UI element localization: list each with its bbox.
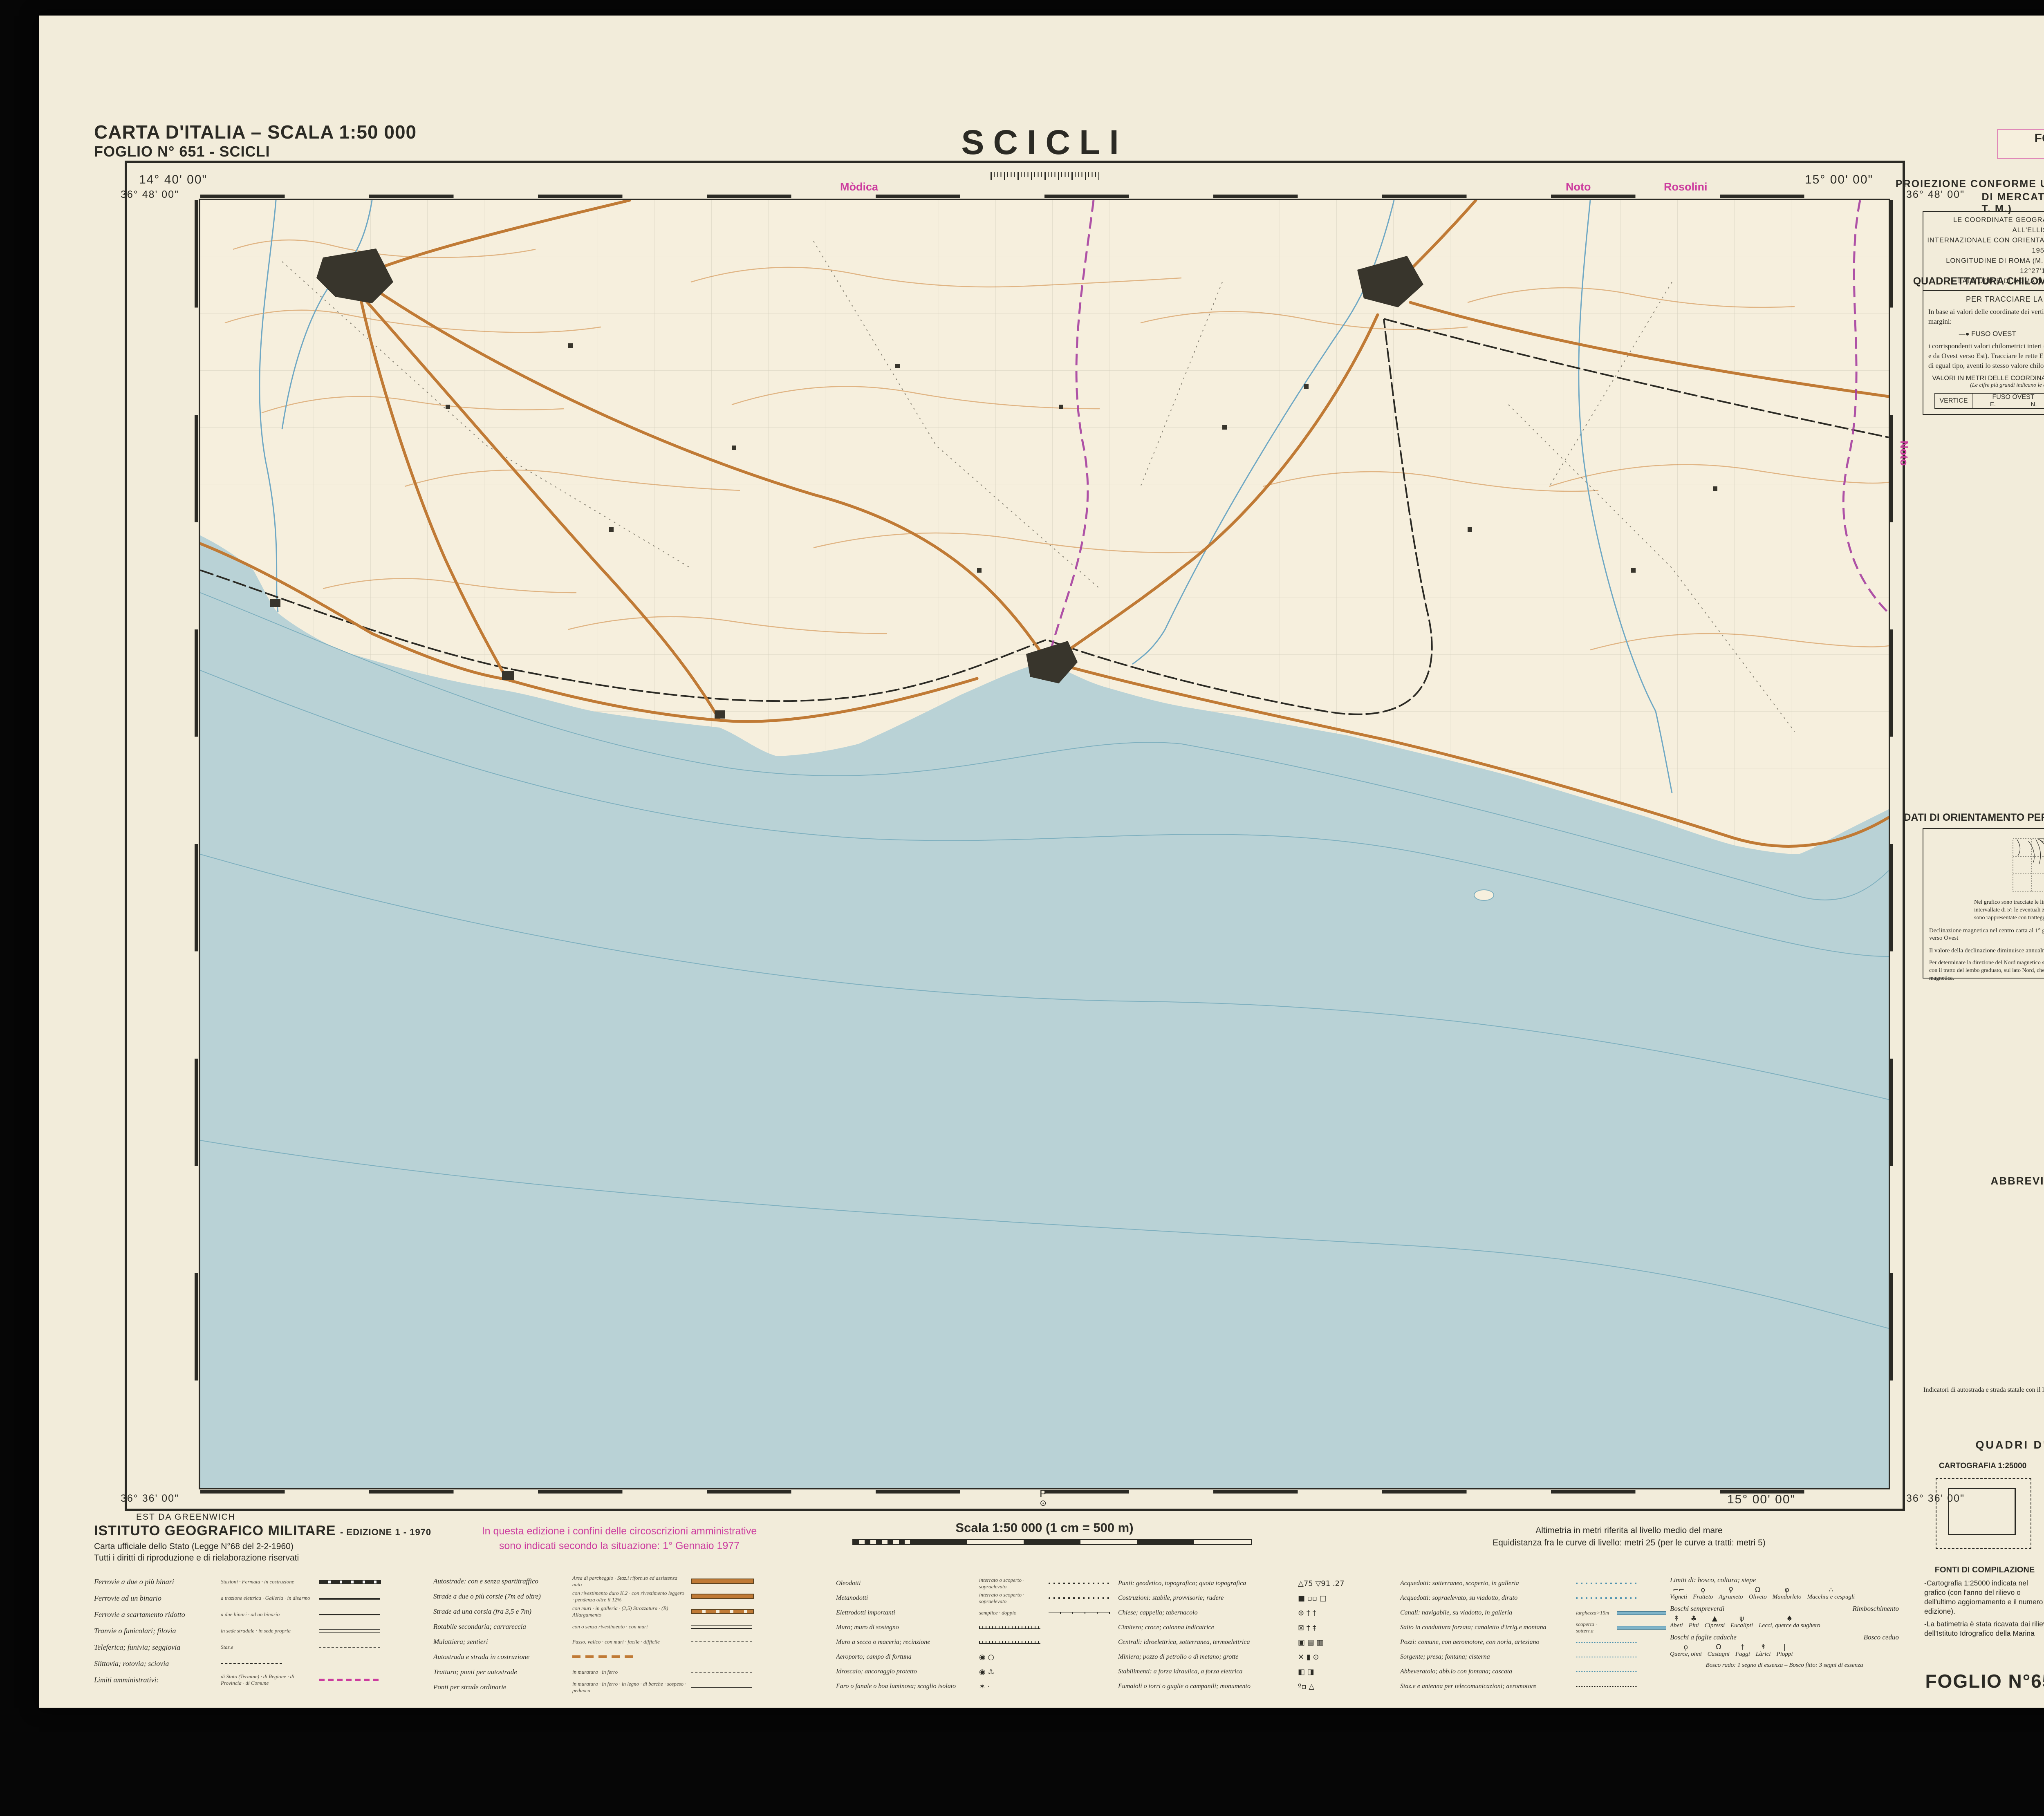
legend-symbol-icon bbox=[1617, 1611, 1666, 1615]
declination-ruler bbox=[991, 172, 1098, 193]
map-sheet: CARTA D'ITALIA – SCALA 1:50 000 FOGLIO N… bbox=[39, 16, 2044, 1708]
legend-column-roads: Autostrade: con e senza spartitraffico A… bbox=[433, 1574, 832, 1695]
legend-label: Idroscalo; ancoraggio protetto bbox=[836, 1668, 975, 1675]
legend-row: Elettrodotti importanti semplice · doppi… bbox=[836, 1606, 1114, 1620]
legend-symbol-icon bbox=[1576, 1642, 1637, 1643]
vegetation-icon: Ω bbox=[1708, 1644, 1730, 1651]
legend-label: Tranvie o funicolari; filovia bbox=[94, 1627, 217, 1635]
map-title: SCICLI bbox=[961, 123, 1127, 162]
vegetation-item: Ω Oliveto bbox=[1749, 1587, 1767, 1601]
fonti-text: -Cartografia 1:25000 indicata nel grafic… bbox=[1924, 1579, 2044, 1641]
map-svg bbox=[200, 200, 1889, 1488]
veg-deciduous-row: ϙ Querce, olmi Ω Castagni † Faggi ↟ Làri… bbox=[1670, 1644, 1899, 1658]
legend-glyphs-icon: ▣ ▤ ▥ bbox=[1298, 1638, 1323, 1647]
legend-glyphs-icon: ✕ ▮ ⊙ bbox=[1298, 1653, 1319, 1661]
legend-label: Acquedotti: sopraelevato, su viadotto, d… bbox=[1400, 1594, 1572, 1602]
admin-note-line1: In questa edizione i confini delle circo… bbox=[439, 1524, 799, 1538]
legend-symbol-icon bbox=[1049, 1597, 1110, 1599]
fonti-item-1: -Cartografia 1:25000 indicata nel grafic… bbox=[1924, 1579, 2044, 1616]
legend-symbol-icon bbox=[319, 1614, 380, 1615]
legend-sublabel: a due binari · ad un binario bbox=[221, 1611, 315, 1618]
corner-lon-se: 15° 00' 00" bbox=[1727, 1493, 1795, 1507]
legend-sublabel: semplice · doppio bbox=[979, 1610, 1044, 1616]
scale-bar-segment bbox=[967, 1540, 1024, 1544]
veg-coppice-label: Bosco ceduo bbox=[1864, 1633, 1899, 1641]
vegetation-name: Pioppi bbox=[1776, 1651, 1793, 1657]
scale-bar-segment bbox=[1194, 1540, 1251, 1544]
publisher-rights: Tutti i diritti di riproduzione e di rie… bbox=[94, 1553, 299, 1563]
vegetation-item: ♀ Agrumeto bbox=[1719, 1587, 1743, 1601]
legend-label: Elettrodotti importanti bbox=[836, 1609, 975, 1617]
legend-row: Fumaioli o torri o guglie o campanili; m… bbox=[1118, 1679, 1396, 1694]
quad-paragraph-2: i corrispondenti valori chilometrici int… bbox=[1928, 341, 2044, 371]
publisher-edition: - EDIZIONE 1 - 1970 bbox=[340, 1527, 431, 1537]
legend-sublabel: larghezza>15m bbox=[1576, 1610, 1613, 1616]
legend-symbol-icon bbox=[319, 1679, 380, 1681]
legend-symbol-icon bbox=[319, 1598, 380, 1599]
legend-row: Punti: geodetico, topografico; quota top… bbox=[1118, 1576, 1396, 1591]
vegetation-icon: | bbox=[1776, 1644, 1793, 1651]
projection-title-1: PROIEZIONE CONFORME UNIVERSALE TRASVERSA bbox=[1896, 178, 2044, 190]
vegetation-icon: ♣ bbox=[1689, 1615, 1699, 1622]
legend-symbol-icon bbox=[691, 1687, 752, 1688]
legend-row: Metanodotti interrato o scoperto · sopra… bbox=[836, 1591, 1114, 1606]
legend-row: Canali: navigabile, su viadotto, in gall… bbox=[1400, 1606, 1666, 1620]
legend-row: Stabilimenti: a forza idraulica, a forza… bbox=[1118, 1664, 1396, 1679]
sheet-subtitle: FOGLIO N° 651 - SCICLI bbox=[94, 143, 270, 160]
minute-ticks-right bbox=[1889, 200, 1893, 1488]
legend-sublabel: di Stato (Termine) · di Regione · di Pro… bbox=[221, 1673, 315, 1686]
edge-town-noto-top: Noto bbox=[1566, 181, 1591, 193]
veg-limits-label: Limiti di: bosco, coltura; siepe bbox=[1670, 1576, 1899, 1584]
fonti-title: FONTI DI COMPILAZIONE bbox=[1935, 1565, 2035, 1575]
annual-variation-text: Il valore della declinazione diminuisce … bbox=[1929, 947, 2044, 954]
foglio-box: FOGLIO N°651 - SCICLI SERIE M 792 L, EDI… bbox=[1997, 129, 2044, 159]
publisher-name: ISTITUTO GEOGRAFICO MILITARE - EDIZIONE … bbox=[94, 1523, 431, 1539]
corner-lon-nw: 14° 40' 00" bbox=[139, 173, 207, 187]
legend-label: Aeroporto; campo di fortuna bbox=[836, 1653, 975, 1661]
corner-lat-nw: 36° 48' 00" bbox=[121, 189, 179, 201]
vegetation-item: | Pioppi bbox=[1776, 1644, 1793, 1658]
vegetation-item: ↟ Làrici bbox=[1756, 1644, 1771, 1658]
veg-crop-row: ⌐⌐ Vigneti ϙ Frutteto ♀ Agrumeto Ω Olive… bbox=[1670, 1587, 1899, 1601]
legend-row: Tranvie o funicolari; filovia in sede st… bbox=[94, 1623, 429, 1639]
vegetation-name: Eucalipti bbox=[1730, 1622, 1753, 1629]
quadri-unione-title: QUADRI D'UNIONE bbox=[1976, 1439, 2044, 1451]
vegetation-icon: ϙ bbox=[1670, 1644, 1702, 1651]
legend-sublabel: a trazione elettrica · Galleria · in dis… bbox=[221, 1595, 315, 1601]
altimetry-line1: Altimetria in metri riferita al livello … bbox=[1363, 1525, 1895, 1537]
series-title: CARTA D'ITALIA – SCALA 1:50 000 bbox=[94, 121, 417, 143]
legend-label: Strade a due o più corsie (7m ed oltre) bbox=[433, 1592, 568, 1601]
legend-label: Ferrovie a due o più binari bbox=[94, 1578, 217, 1586]
fuso-ovest-icon: —● bbox=[1959, 331, 1970, 338]
legend-sublabel: con rivestimento duro K.2 · con rivestim… bbox=[572, 1590, 687, 1603]
legend-sublabel: Area di parcheggio · Staz.i riforn.to ed… bbox=[572, 1575, 687, 1588]
legend-glyphs-icon: ■ ▫▫ □ bbox=[1298, 1594, 1327, 1603]
annual-variation-line: Il valore della declinazione diminuisce … bbox=[1929, 945, 2044, 955]
legend-label: Ferrovie ad un binario bbox=[94, 1594, 217, 1603]
minute-ticks-left bbox=[195, 200, 198, 1488]
legend-symbol-icon bbox=[1576, 1657, 1637, 1657]
declination-diagram bbox=[2009, 835, 2044, 896]
vegetation-icon: † bbox=[1735, 1644, 1750, 1651]
cartografia-25000-title: CARTOGRAFIA 1:25000 bbox=[1939, 1462, 2026, 1471]
legend-row: Autostrade: con e senza spartitraffico A… bbox=[433, 1574, 832, 1589]
legend-label: Ponti per strade ordinarie bbox=[433, 1683, 568, 1691]
legend-label: Rotabile secondaria; carrareccia bbox=[433, 1623, 568, 1631]
fusi-row: —● FUSO OVEST —< FUSO EST bbox=[1928, 330, 2044, 338]
vegetation-icon: ↟ bbox=[1670, 1615, 1683, 1622]
vegetation-name: Cipressi bbox=[1705, 1622, 1725, 1629]
vegetation-item: Ω Castagni bbox=[1708, 1644, 1730, 1658]
vegetation-item: ∴ Macchia e cespugli bbox=[1807, 1587, 1855, 1601]
admin-note-line2: sono indicati secondo la situazione: 1° … bbox=[439, 1538, 799, 1553]
col-n: N. bbox=[2013, 401, 2044, 408]
col-vertice: VERTICE bbox=[1935, 397, 1972, 405]
quad-values-subheading: (Le cifre più grandi indicano le decine … bbox=[1928, 382, 2044, 389]
edge-town-modica: Mòdica bbox=[840, 181, 878, 193]
legend-label: Acquedotti: sotterraneo, scoperto, in ga… bbox=[1400, 1580, 1572, 1587]
declination-text: Declinazione magnetica nel centro carta … bbox=[1929, 927, 2044, 934]
legend-label: Faro o fanale o boa luminosa; scoglio is… bbox=[836, 1683, 975, 1690]
legend-glyphs-icon: ◉ ○ bbox=[979, 1653, 994, 1661]
scale-bar-segment bbox=[1024, 1540, 1080, 1544]
scale-bar-segment bbox=[1080, 1540, 1137, 1544]
veg-deciduous-label: Boschi a foglie caduche bbox=[1670, 1633, 1737, 1641]
quadrettatura-title: QUADRETTATURA CHILOMETRICA GAUSS - BOAGA bbox=[1913, 275, 2044, 287]
legend-row: Aeroporto; campo di fortuna ◉ ○ bbox=[836, 1650, 1114, 1664]
legend-label: Ferrovie a scartamento ridotto bbox=[94, 1610, 217, 1619]
legend-label: Muro a secco o maceria; recinzione bbox=[836, 1639, 975, 1646]
vertex-coordinates-table: VERTICE FUSO OVEST E.N. FUSO EST E.N. bbox=[1934, 393, 2044, 409]
quad-values-heading: VALORI IN METRI DELLE COORDINATE DEI VER… bbox=[1928, 375, 2044, 382]
legend-row: Strade ad una corsia (fra 3,5 e 7m) con … bbox=[433, 1604, 832, 1619]
legend-label: Muro; muro di sostegno bbox=[836, 1624, 975, 1631]
index-diagram-25000 bbox=[1936, 1478, 2031, 1549]
legend-label: Canali: navigabile, su viadotto, in gall… bbox=[1400, 1609, 1572, 1617]
veg-evergreen-row: ↟ Abeti ♣ Pini ▲ Cipressi ψ Eucalipti ♠ … bbox=[1670, 1615, 1899, 1629]
legend-label: Chiese; cappella; tabernacolo bbox=[1118, 1609, 1294, 1617]
p-dot-icon: ⊙ bbox=[1040, 1498, 1047, 1508]
legend-row: Sorgente; presa; fontana; cisterna bbox=[1400, 1650, 1666, 1664]
legend-label: Stabilimenti: a forza idraulica, a forza… bbox=[1118, 1668, 1294, 1675]
legend-label: Centrali: idroelettrica, sotterranea, te… bbox=[1118, 1639, 1294, 1646]
legend-row: Miniera; pozzo di petrolio o di metano; … bbox=[1118, 1650, 1396, 1664]
vegetation-item: ϙ Querce, olmi bbox=[1670, 1644, 1702, 1658]
legend-glyphs-icon: △75 ▽91 .27 bbox=[1298, 1579, 1345, 1588]
legend-symbol-icon bbox=[1617, 1626, 1666, 1630]
orientation-title: DATI DI ORIENTAMENTO PER IL CENTRO DELLA… bbox=[1903, 812, 2044, 824]
declination-p-marker: P ⊙ bbox=[1040, 1489, 1047, 1508]
legend-label: Pozzi: comune, con aeromotore, con noria… bbox=[1400, 1639, 1572, 1646]
vegetation-icon: ♀ bbox=[1719, 1587, 1743, 1594]
legend-glyphs-icon: ✶ · bbox=[979, 1682, 990, 1691]
legend-sublabel: scoperta · sotterr.a bbox=[1576, 1621, 1613, 1634]
legend-label: Miniera; pozzo di petrolio o di metano; … bbox=[1118, 1653, 1294, 1661]
legend-row: Tratturo; ponti per autostrade in muratu… bbox=[433, 1664, 832, 1679]
legend-symbol-icon bbox=[319, 1580, 381, 1584]
legend-symbol-icon bbox=[1576, 1686, 1637, 1687]
legend-glyphs-icon: ⊕ † † bbox=[1298, 1609, 1316, 1617]
admin-boundaries-note: In questa edizione i confini delle circo… bbox=[439, 1524, 799, 1553]
vegetation-item: ψ Eucalipti bbox=[1730, 1615, 1753, 1629]
vegetation-name: Mandorleto bbox=[1773, 1594, 1802, 1600]
legend-symbol-icon bbox=[979, 1641, 1040, 1644]
publisher-title: ISTITUTO GEOGRAFICO MILITARE bbox=[94, 1523, 336, 1538]
vegetation-item: † Faggi bbox=[1735, 1644, 1750, 1658]
legend-label: Mulattiera; sentieri bbox=[433, 1638, 568, 1646]
legend-symbol-icon bbox=[1049, 1612, 1110, 1614]
declination-caption: Nel grafico sono tracciate le linee di e… bbox=[1974, 898, 2044, 922]
vegetation-item: ⌐⌐ Vigneti bbox=[1670, 1587, 1687, 1601]
foglio-number: FOGLIO N°651 - SCICLI bbox=[2002, 132, 2044, 159]
magnetic-north-note: Per determinare la direzione del Nord ma… bbox=[1929, 959, 2044, 982]
legend-label: Limiti amministrativi: bbox=[94, 1676, 217, 1684]
legend-symbol-icon bbox=[691, 1594, 754, 1599]
vegetation-icon: ∴ bbox=[1807, 1587, 1855, 1594]
legend-symbol-icon bbox=[691, 1672, 752, 1673]
legend-row: Autostrada e strada in costruzione bbox=[433, 1649, 832, 1664]
legend-label: Oleodotti bbox=[836, 1580, 975, 1587]
legend-symbol-icon bbox=[1576, 1671, 1637, 1672]
col-e: E. bbox=[1972, 401, 2013, 408]
legend-glyphs-icon: ◧ ◨ bbox=[1298, 1668, 1314, 1676]
legend-row: Salto in conduttura forzata; canaletto d… bbox=[1400, 1620, 1666, 1635]
legend-row: Acquedotti: sotterraneo, scoperto, in ga… bbox=[1400, 1576, 1666, 1591]
legend-sublabel: in muratura · in ferro bbox=[572, 1669, 687, 1675]
legend-row: Faro o fanale o boa luminosa; scoglio is… bbox=[836, 1679, 1114, 1694]
legend-row: Limiti amministrativi: di Stato (Termine… bbox=[94, 1672, 429, 1688]
vegetation-name: Querce, olmi bbox=[1670, 1651, 1702, 1657]
veg-evergreen-label: Boschi sempreverdi bbox=[1670, 1605, 1724, 1613]
legend-row: Centrali: idroelettrica, sotterranea, te… bbox=[1118, 1635, 1396, 1650]
legend-row: Strade a due o più corsie (7m ed oltre) … bbox=[433, 1589, 832, 1604]
legend-row: Muro; muro di sostegno bbox=[836, 1620, 1114, 1635]
altimetry-note: Altimetria in metri riferita al livello … bbox=[1363, 1525, 1895, 1549]
footer-sheet-number: FOGLIO N°651 - SCICLI bbox=[1925, 1670, 2044, 1692]
legend-column-railways: Ferrovie a due o più binari Stazioni · F… bbox=[94, 1574, 429, 1688]
vegetation-icon: ⌐⌐ bbox=[1670, 1587, 1687, 1594]
vegetation-item: φ Mandorleto bbox=[1773, 1587, 1802, 1601]
edge-town-rosolini: Rosolini bbox=[1664, 181, 1708, 193]
greenwich-note: EST DA GREENWICH bbox=[136, 1512, 235, 1522]
quad-paragraph-1: In base ai valori delle coordinate dei v… bbox=[1928, 307, 2044, 327]
legend-label: Punti: geodetico, topografico; quota top… bbox=[1118, 1580, 1294, 1587]
legend-sublabel: con muri · in galleria · (2,5) Strozzatu… bbox=[572, 1605, 687, 1618]
legend-row: Muro a secco o maceria; recinzione bbox=[836, 1635, 1114, 1650]
publisher-law: Carta ufficiale dello Stato (Legge N°68 … bbox=[94, 1542, 294, 1552]
p-letter: P bbox=[1040, 1489, 1047, 1498]
legend-symbol-icon bbox=[691, 1609, 754, 1614]
indicators-text: Indicatori di autostrada e strada statal… bbox=[1923, 1386, 2044, 1394]
legend-label: Salto in conduttura forzata; canaletto d… bbox=[1400, 1624, 1572, 1631]
corner-lat-ne: 36° 48' 00" bbox=[1906, 189, 1965, 201]
legend-glyphs-icon: º▫ △ bbox=[1298, 1682, 1314, 1691]
legend-sublabel: in muratura · in ferro · in legno · di b… bbox=[572, 1681, 687, 1694]
legend-label: Staz.e e antenna per telecomunicazioni; … bbox=[1400, 1683, 1572, 1690]
abbreviations-title: ABBREVIAZIONI bbox=[1990, 1175, 2044, 1187]
legend-column-vegetation: Limiti di: bosco, coltura; siepe ⌐⌐ Vign… bbox=[1670, 1576, 1899, 1669]
declination-ruler-major-ticks bbox=[991, 172, 1099, 180]
legend-label: Metanodotti bbox=[836, 1594, 975, 1602]
declination-value-line: Declinazione magnetica nel centro carta … bbox=[1929, 925, 2044, 942]
veg-reforestation-label: Rimboschimento bbox=[1853, 1605, 1899, 1613]
vegetation-icon: ♠ bbox=[1759, 1615, 1820, 1622]
island-porri bbox=[1474, 890, 1494, 900]
map-canvas bbox=[200, 200, 1889, 1488]
sheet-outline-25000 bbox=[1948, 1488, 2016, 1535]
legend-glyphs-icon: ◉ ⚓ bbox=[979, 1668, 995, 1676]
vegetation-icon: ↟ bbox=[1756, 1644, 1771, 1651]
legend-label: Abbeveratoio; abb.io con fontana; cascat… bbox=[1400, 1668, 1572, 1675]
vegetation-icon: Ω bbox=[1749, 1587, 1767, 1594]
legend-row: Mulattiera; sentieri Passo, valico · con… bbox=[433, 1634, 832, 1649]
scale-bar-segment bbox=[1137, 1540, 1194, 1544]
legend-sublabel: in sede stradale · in sede propria bbox=[221, 1628, 315, 1634]
legend-row: Ponti per strade ordinarie in muratura ·… bbox=[433, 1679, 832, 1695]
vegetation-name: Oliveto bbox=[1749, 1594, 1767, 1600]
legend-symbol-icon bbox=[691, 1641, 752, 1642]
legend-row: Pozzi: comune, con aeromotore, con noria… bbox=[1400, 1635, 1666, 1650]
corner-lon-ne: 15° 00' 00" bbox=[1805, 173, 1873, 187]
coord-note-line1: LE COORDINATE GEOGRAFICHE SONO RIFERITE … bbox=[1926, 215, 2044, 235]
coord-note-line2: INTERNAZIONALE CON ORIENTAMENTO MEDIO EU… bbox=[1926, 235, 2044, 256]
road-number-indicators: Indicatori di autostrada e strada statal… bbox=[1923, 1386, 2044, 1395]
legend-row: Staz.e e antenna per telecomunicazioni; … bbox=[1400, 1679, 1666, 1694]
coord-note-line3: LONGITUDINE DI ROMA (M. MARIO), DA GREEN… bbox=[1926, 256, 2044, 276]
vegetation-icon: ψ bbox=[1730, 1615, 1753, 1622]
legend-sublabel: Passo, valico · con muri · facile · diff… bbox=[572, 1639, 687, 1645]
legend-sublabel: Stazioni · Fermata · in costruzione bbox=[221, 1579, 315, 1585]
legend-sublabel: Staz.e bbox=[221, 1644, 315, 1650]
legend-label: Sorgente; presa; fontana; cisterna bbox=[1400, 1653, 1572, 1661]
legend-row: Ferrovie ad un binario a trazione elettr… bbox=[94, 1590, 429, 1606]
vegetation-name: Macchia e cespugli bbox=[1807, 1594, 1855, 1600]
legend-row: Idroscalo; ancoraggio protetto ◉ ⚓ bbox=[836, 1664, 1114, 1679]
legend-label: Autostrada e strada in costruzione bbox=[433, 1653, 568, 1661]
vegetation-item: ♠ Lecci, querce da sughero bbox=[1759, 1615, 1820, 1629]
legend-label: Teleferica; funivia; seggiovia bbox=[94, 1643, 217, 1652]
legend-row: Costruzioni: stabile, provvisorie; ruder… bbox=[1118, 1591, 1396, 1606]
vegetation-name: Làrici bbox=[1756, 1651, 1771, 1657]
legend-row: Slittovia; rotovia; sciovia bbox=[94, 1655, 429, 1672]
legend-row: Teleferica; funivia; seggiovia Staz.e bbox=[94, 1639, 429, 1655]
legend-row: Cimitero; croce; colonna indicatrice ⊠ †… bbox=[1118, 1620, 1396, 1635]
legend-column-points: Punti: geodetico, topografico; quota top… bbox=[1118, 1576, 1396, 1694]
legend-sublabel: con o senza rivestimento · con muri bbox=[572, 1623, 687, 1630]
vegetation-name: Faggi bbox=[1735, 1651, 1750, 1657]
legend-row: Acquedotti: sopraelevato, su viadotto, d… bbox=[1400, 1591, 1666, 1606]
legend-row: Oleodotti interrato o scoperto · soprael… bbox=[836, 1576, 1114, 1591]
legend-symbol-icon bbox=[221, 1663, 282, 1664]
vegetation-name: Vigneti bbox=[1670, 1594, 1687, 1600]
vegetation-name: Castagni bbox=[1708, 1651, 1730, 1657]
quadrettatura-box: PER TRACCIARE LA QUADRETTATURA: In base … bbox=[1923, 290, 2044, 415]
legend-symbol-icon bbox=[1049, 1583, 1110, 1584]
orientation-box: Nel grafico sono tracciate le linee di e… bbox=[1923, 828, 2044, 979]
vegetation-name: Abeti bbox=[1670, 1622, 1683, 1629]
scale-bar bbox=[852, 1539, 1252, 1545]
fonti-item-2: -La batimetria è stata ricavata dai rili… bbox=[1924, 1619, 2044, 1638]
vegetation-item: ϙ Frutteto bbox=[1693, 1587, 1713, 1601]
vegetation-icon: ▲ bbox=[1705, 1615, 1725, 1622]
legend-sublabel: interrato o scoperto · sopraelevato bbox=[979, 1592, 1044, 1605]
quad-heading: PER TRACCIARE LA QUADRETTATURA: bbox=[1928, 295, 2044, 304]
legend-glyphs-icon: ⊠ † ‡ bbox=[1298, 1623, 1316, 1632]
vegetation-item: ▲ Cipressi bbox=[1705, 1615, 1725, 1629]
vegetation-name: Pini bbox=[1689, 1622, 1699, 1629]
legend-sublabel: interrato o scoperto · sopraelevato bbox=[979, 1577, 1044, 1590]
legend-symbol-icon bbox=[691, 1579, 754, 1584]
legend-label: Slittovia; rotovia; sciovia bbox=[94, 1659, 217, 1668]
vegetation-name: Lecci, querce da sughero bbox=[1759, 1622, 1820, 1629]
veg-density-note: Bosco rado: 1 segno di essenza – Bosco f… bbox=[1670, 1662, 1899, 1669]
legend-label: Fumaioli o torri o guglie o campanili; m… bbox=[1118, 1683, 1294, 1690]
legend-label: Strade ad una corsia (fra 3,5 e 7m) bbox=[433, 1608, 568, 1616]
minute-ticks-top bbox=[200, 195, 1889, 198]
legend-column-water: Acquedotti: sotterraneo, scoperto, in ga… bbox=[1400, 1576, 1666, 1694]
legend-symbol-icon bbox=[572, 1655, 634, 1658]
fuso-ovest-label: FUSO OVEST bbox=[1971, 330, 2016, 338]
legend-label: Tratturo; ponti per autostrade bbox=[433, 1668, 568, 1676]
declination-direction: verso Ovest bbox=[1929, 935, 1958, 941]
legend-row: Chiese; cappella; tabernacolo ⊕ † † bbox=[1118, 1606, 1396, 1620]
legend-row: Rotabile secondaria; carrareccia con o s… bbox=[433, 1619, 832, 1634]
scale-bar-segment bbox=[910, 1540, 967, 1544]
legend-symbol-icon bbox=[691, 1625, 752, 1629]
vegetation-icon: ϙ bbox=[1693, 1587, 1713, 1594]
legend-row: Ferrovie a due o più binari Stazioni · F… bbox=[94, 1574, 429, 1590]
legend-column-utilities: Oleodotti interrato o scoperto · soprael… bbox=[836, 1576, 1114, 1694]
legend-symbol-icon bbox=[319, 1647, 380, 1648]
legend-symbol-icon bbox=[319, 1629, 380, 1633]
legend-symbol-icon bbox=[1576, 1597, 1637, 1599]
vegetation-item: ↟ Abeti bbox=[1670, 1615, 1683, 1629]
vegetation-item: ♣ Pini bbox=[1689, 1615, 1699, 1629]
col-fuso-ovest: FUSO OVEST E.N. bbox=[1972, 394, 2044, 408]
legend-symbol-icon bbox=[1576, 1583, 1637, 1584]
legend-label: Costruzioni: stabile, provvisorie; ruder… bbox=[1118, 1594, 1294, 1602]
corner-lat-sw: 36° 36' 00" bbox=[121, 1493, 179, 1505]
legend-row: Abbeveratoio; abb.io con fontana; cascat… bbox=[1400, 1664, 1666, 1679]
scale-label: Scala 1:50 000 (1 cm = 500 m) bbox=[955, 1520, 1133, 1535]
altimetry-line2: Equidistanza fra le curve di livello: me… bbox=[1363, 1537, 1895, 1549]
vegetation-icon: φ bbox=[1773, 1587, 1802, 1594]
legend-label: Autostrade: con e senza spartitraffico bbox=[433, 1577, 568, 1585]
vegetation-name: Agrumeto bbox=[1719, 1594, 1743, 1600]
legend-symbol-icon bbox=[979, 1626, 1040, 1629]
scale-bar-subdivided-segment bbox=[853, 1540, 910, 1544]
vegetation-name: Frutteto bbox=[1693, 1594, 1713, 1600]
fuso-ovest-header: FUSO OVEST bbox=[1972, 394, 2044, 401]
legend-row: Ferrovie a scartamento ridotto a due bin… bbox=[94, 1606, 429, 1623]
edge-town-noto-right: Noto bbox=[1898, 441, 1910, 466]
legend-label: Cimitero; croce; colonna indicatrice bbox=[1118, 1624, 1294, 1631]
